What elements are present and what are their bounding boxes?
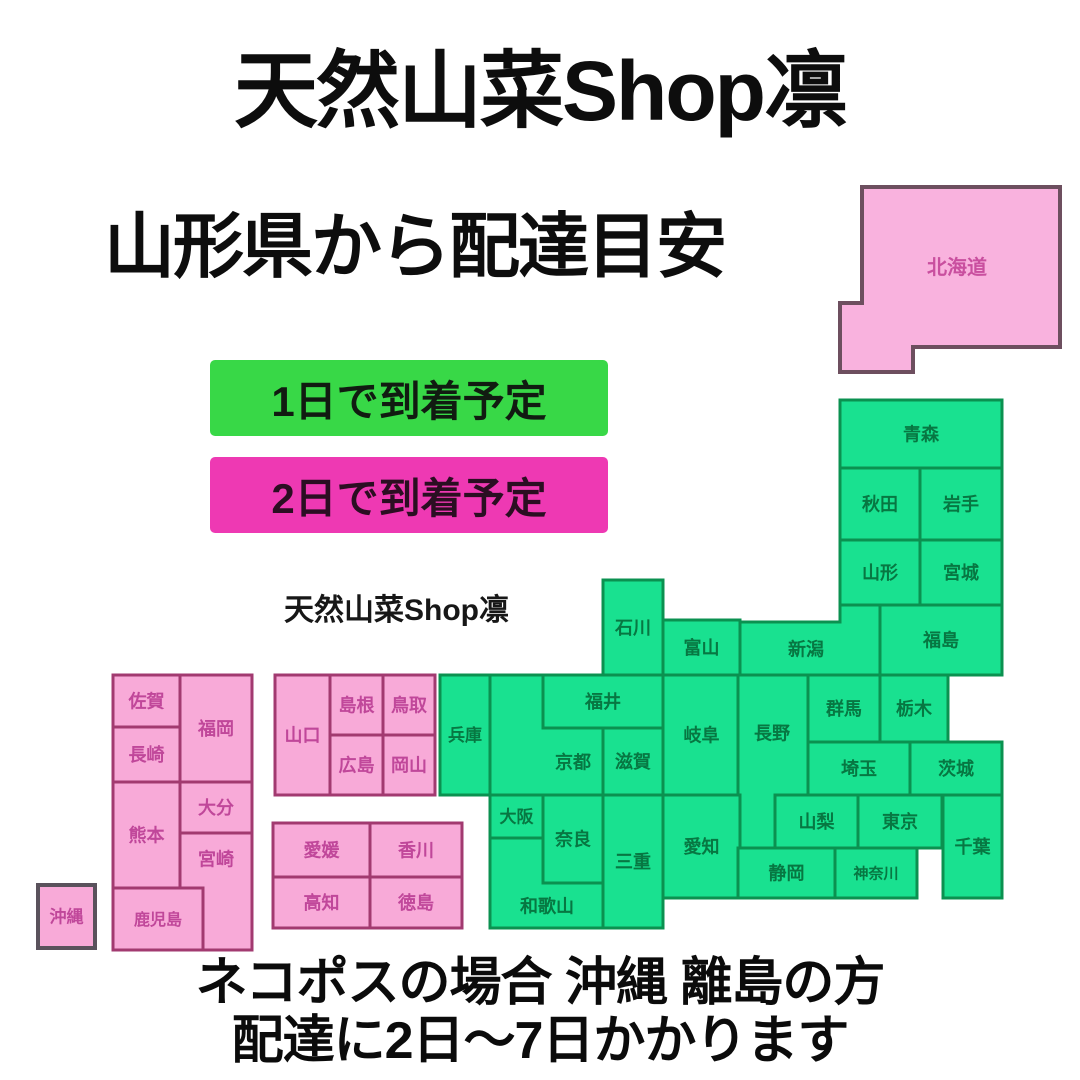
prefecture-label-okayama: 岡山: [391, 755, 427, 775]
prefecture-label-gunma: 群馬: [826, 698, 862, 719]
prefecture-label-nagano: 長野: [754, 723, 790, 743]
prefecture-label-shiga: 滋賀: [615, 751, 651, 772]
prefecture-label-miyazaki: 宮崎: [198, 848, 234, 869]
shop-watermark: 天然山菜Shop凛: [284, 585, 509, 629]
prefecture-label-fukui: 福井: [584, 691, 621, 712]
prefecture-label-akita: 秋田: [862, 493, 898, 514]
prefecture-label-toyama: 富山: [684, 637, 720, 658]
prefecture-label-oita: 大分: [198, 797, 234, 818]
prefecture-label-niigata: 新潟: [788, 638, 824, 659]
footer-note-line1: ネコポスの場合 沖縄 離島の方: [0, 954, 1080, 1012]
prefecture-label-fukushima: 福島: [922, 629, 959, 650]
prefecture-label-nara: 奈良: [554, 828, 591, 849]
prefecture-label-iwate: 岩手: [942, 493, 979, 514]
prefecture-label-osaka: 大阪: [500, 807, 534, 827]
prefecture-label-chiba: 千葉: [955, 837, 992, 857]
prefecture-label-tottori: 鳥取: [391, 694, 428, 715]
prefecture-label-ishikawa: 石川: [614, 618, 651, 638]
footer-note: ネコポスの場合 沖縄 離島の方 配達に2日〜7日かかります: [0, 954, 1080, 1070]
prefecture-label-tokushima: 徳島: [397, 892, 434, 913]
prefecture-label-yamaguchi: 山口: [285, 725, 321, 745]
prefecture-label-shimane: 島根: [339, 694, 375, 715]
page-subtitle: 山形県から配達目安: [104, 190, 725, 292]
prefecture-label-aomori: 青森: [903, 423, 940, 444]
prefecture-label-kochi: 高知: [304, 892, 340, 913]
prefecture-label-fukuoka: 福岡: [197, 718, 234, 739]
prefecture-label-ehime: 愛媛: [304, 839, 341, 860]
legend: 1日で到着予定 2日で到着予定: [210, 360, 608, 554]
prefecture-label-aichi: 愛知: [684, 836, 720, 857]
page-title: 天然山菜Shop凛: [0, 24, 1080, 145]
prefecture-label-saga: 佐賀: [128, 690, 165, 711]
prefecture-label-tochigi: 栃木: [896, 698, 933, 719]
prefecture-label-hokkaido: 北海道: [927, 255, 987, 279]
prefecture-label-nagasaki: 長崎: [129, 744, 165, 765]
prefecture-label-wakayama: 和歌山: [520, 895, 574, 916]
prefecture-label-kagoshima: 鹿児島: [134, 910, 182, 929]
prefecture-label-okinawa: 沖縄: [50, 907, 84, 927]
prefecture-label-kagawa: 香川: [397, 840, 434, 860]
footer-note-line2: 配達に2日〜7日かかります: [0, 1012, 1080, 1070]
prefecture-label-ibaraki: 茨城: [938, 758, 974, 779]
prefecture-label-yamanashi: 山梨: [799, 811, 835, 832]
prefecture-label-gifu: 岐阜: [684, 724, 720, 745]
prefecture-label-hiroshima: 広島: [339, 754, 375, 775]
legend-one-day-label: 1日で到着予定: [271, 368, 546, 429]
prefecture-label-shizuoka: 静岡: [769, 862, 805, 883]
legend-one-day: 1日で到着予定: [210, 360, 608, 436]
prefecture-label-yamagata: 山形: [862, 563, 898, 583]
legend-two-day-label: 2日で到着予定: [271, 465, 546, 526]
prefecture-hokkaido: [840, 187, 1060, 372]
prefecture-label-saitama: 埼玉: [841, 758, 877, 779]
shipping-info-image: 北海道青森秋田岩手山形宮城福島新潟石川富山福井岐阜長野群馬栃木埼玉茨城兵庫京都滋…: [0, 0, 1080, 1080]
prefecture-label-kyoto: 京都: [555, 751, 591, 772]
prefecture-label-mie: 三重: [615, 851, 651, 872]
prefecture-label-kumamoto: 熊本: [129, 824, 165, 845]
prefecture-label-tokyo: 東京: [882, 811, 918, 832]
prefecture-label-hyogo: 兵庫: [448, 725, 482, 745]
prefecture-label-kanagawa: 神奈川: [853, 864, 898, 882]
prefecture-label-miyagi: 宮城: [943, 562, 979, 583]
legend-two-day: 2日で到着予定: [210, 457, 608, 533]
